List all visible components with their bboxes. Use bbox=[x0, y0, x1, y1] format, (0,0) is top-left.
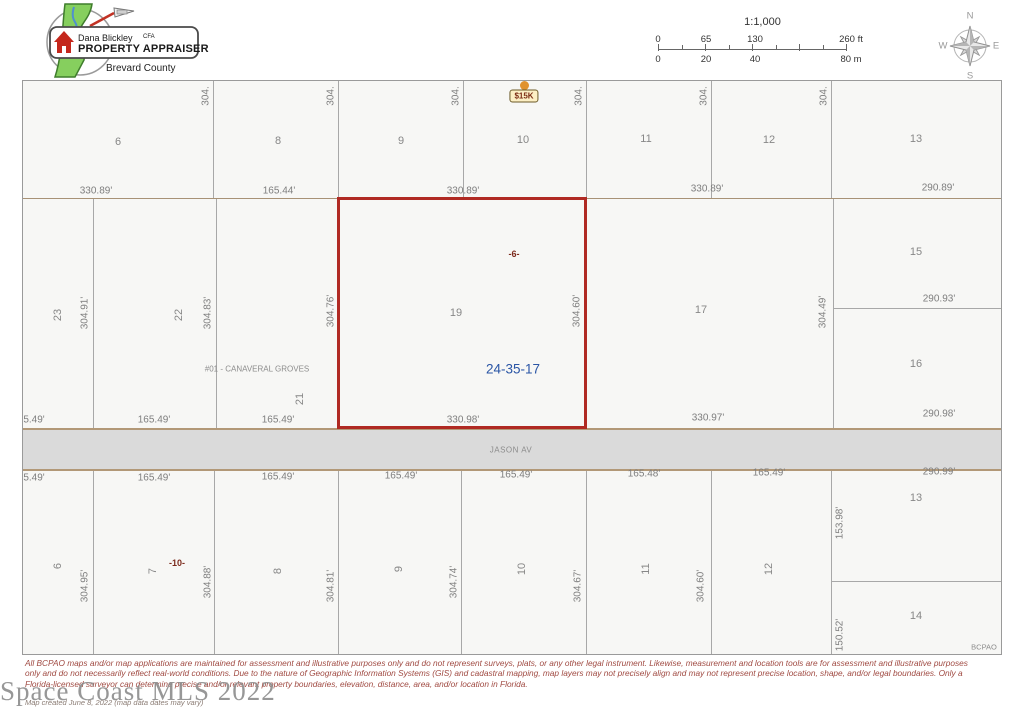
scale-tick bbox=[729, 45, 730, 50]
dimension-label: 165.49' bbox=[262, 415, 295, 426]
subject-section-township-range: 24-35-17 bbox=[486, 362, 540, 377]
map-note-label: #01 - CANAVERAL GROVES bbox=[205, 365, 309, 374]
parcel-boundary-line bbox=[214, 471, 215, 654]
listing-price-badge[interactable]: $15K bbox=[509, 90, 538, 103]
parcel-number-label: 13 bbox=[910, 133, 922, 145]
parcel-boundary-line bbox=[711, 81, 712, 198]
dimension-label: 165.44' bbox=[263, 186, 296, 197]
dimension-label: 330.89' bbox=[691, 184, 724, 195]
scale-tick bbox=[776, 45, 777, 50]
compass-e-label: E bbox=[993, 41, 999, 52]
bcpao-credit: BCPAO bbox=[971, 643, 997, 652]
parcel-boundary-line bbox=[586, 81, 587, 198]
parcel-boundary-line bbox=[833, 308, 1001, 309]
parcel-boundary-line bbox=[93, 471, 94, 654]
dimension-label: 150.52' bbox=[835, 619, 846, 652]
dimension-label: 304.76' bbox=[326, 295, 337, 328]
dimension-label: 5.49' bbox=[23, 415, 44, 426]
dimension-label: 304.95' bbox=[80, 570, 91, 603]
street-name-label: JASON AV bbox=[490, 446, 533, 455]
parcel-number-label: 8 bbox=[272, 568, 284, 574]
dimension-label: 304.88' bbox=[203, 566, 214, 599]
scale-tick bbox=[658, 44, 659, 51]
subject-parcel-number: 19 bbox=[450, 307, 462, 319]
scale-ft-tick: 260 ft bbox=[839, 34, 863, 45]
parcel-boundary-line bbox=[831, 471, 832, 654]
parcel-number-label: 13 bbox=[910, 492, 922, 504]
parcel-number-label: 10 bbox=[516, 563, 528, 575]
compass-rose-icon: N E S W bbox=[938, 10, 1002, 82]
parcel-boundary-line bbox=[463, 81, 464, 198]
dimension-label: 153.98' bbox=[835, 507, 846, 540]
dimension-label: 304. bbox=[201, 86, 212, 105]
dimension-label: 304. bbox=[451, 86, 462, 105]
parcel-map: JASON AV -6- 19 24-35-17 $15K BCPAO 6891… bbox=[22, 80, 1002, 655]
scale-tick bbox=[823, 45, 824, 50]
dimension-label: 330.98' bbox=[447, 415, 480, 426]
parcel-number-label: 12 bbox=[763, 563, 775, 575]
logo-county: Brevard County bbox=[106, 63, 175, 74]
scale-m-tick: 80 m bbox=[840, 54, 861, 65]
logo-cfa-suffix: CFA bbox=[143, 34, 155, 40]
subject-block-label: -6- bbox=[509, 249, 520, 259]
dimension-label: 165.49' bbox=[753, 468, 786, 479]
scale-tick bbox=[752, 44, 753, 51]
scale-m-tick: 20 bbox=[701, 54, 712, 65]
dimension-label: 290.98' bbox=[923, 409, 956, 420]
map-scale-bar: 1:1,000 0 65 130 260 ft 0 20 40 80 m bbox=[650, 12, 875, 68]
parcel-boundary-line bbox=[831, 81, 832, 198]
parcel-boundary-line bbox=[833, 198, 834, 429]
scale-tick bbox=[682, 45, 683, 50]
compass-n-label: N bbox=[967, 11, 974, 22]
dimension-label: 5.49' bbox=[23, 473, 44, 484]
bcpao-map-page: Dana Blickley CFA PROPERTY APPRAISER Bre… bbox=[0, 0, 1024, 725]
scale-tick bbox=[799, 44, 800, 51]
bcpao-logo: Dana Blickley CFA PROPERTY APPRAISER Bre… bbox=[18, 2, 203, 78]
scale-m-tick: 40 bbox=[750, 54, 761, 65]
parcel-number-label: 15 bbox=[910, 246, 922, 258]
parcel-number-label: 11 bbox=[640, 563, 652, 574]
parcel-number-label: 11 bbox=[640, 133, 651, 145]
parcel-boundary-line bbox=[831, 581, 1001, 582]
dimension-label: 304.74' bbox=[449, 566, 460, 599]
shuttle-trail-icon bbox=[90, 13, 114, 26]
dimension-label: 304.91' bbox=[80, 297, 91, 330]
parcel-boundary-line bbox=[586, 471, 587, 654]
scale-tick bbox=[705, 44, 706, 51]
scale-ft-tick: 65 bbox=[701, 34, 712, 45]
block-number-label: -10- bbox=[169, 558, 185, 568]
parcel-number-label: 17 bbox=[695, 304, 707, 316]
parcel-number-label: 16 bbox=[910, 358, 922, 370]
scale-tick bbox=[846, 44, 847, 51]
dimension-label: 304.81' bbox=[326, 570, 337, 603]
parcel-number-label: 14 bbox=[910, 610, 922, 622]
dimension-label: 330.89' bbox=[80, 186, 113, 197]
dimension-label: 165.49' bbox=[138, 473, 171, 484]
dimension-label: 165.49' bbox=[262, 472, 295, 483]
parcel-number-label: 9 bbox=[393, 566, 405, 572]
dimension-label: 304. bbox=[574, 86, 585, 105]
parcel-number-label: 7 bbox=[147, 568, 159, 574]
dimension-label: 304. bbox=[326, 86, 337, 105]
dimension-label: 165.49' bbox=[138, 415, 171, 426]
parcel-number-label: 6 bbox=[115, 136, 121, 148]
parcel-number-label: 6 bbox=[52, 563, 64, 569]
parcel-number-label: 12 bbox=[763, 134, 775, 146]
parcel-boundary-line bbox=[338, 471, 339, 654]
map-created-text: Map created June 8, 2022 (map data dates… bbox=[25, 698, 203, 707]
logo-appraiser-name: Dana Blickley bbox=[78, 33, 133, 43]
scale-ft-tick: 130 bbox=[747, 34, 763, 45]
parcel-boundary-line bbox=[338, 81, 339, 198]
dimension-label: 304.83' bbox=[203, 297, 214, 330]
dimension-label: 330.97' bbox=[692, 413, 725, 424]
parcel-boundary-line bbox=[711, 471, 712, 654]
parcel-number-label: 21 bbox=[294, 393, 306, 405]
parcel-number-label: 23 bbox=[52, 309, 64, 321]
dimension-label: 290.89' bbox=[922, 183, 955, 194]
dimension-label: 304.60' bbox=[696, 570, 707, 603]
dimension-label: 304.60' bbox=[572, 295, 583, 328]
compass-w-label: W bbox=[939, 41, 948, 52]
parcel-number-label: 22 bbox=[173, 309, 185, 321]
parcel-number-label: 10 bbox=[517, 134, 529, 146]
dimension-label: 304. bbox=[819, 86, 830, 105]
dimension-label: 165.49' bbox=[385, 471, 418, 482]
dimension-label: 165.48' bbox=[628, 469, 661, 480]
dimension-label: 330.89' bbox=[447, 186, 480, 197]
dimension-label: 304.67' bbox=[573, 570, 584, 603]
shuttle-icon bbox=[114, 8, 134, 17]
dimension-label: 290.93' bbox=[923, 294, 956, 305]
logo-title: PROPERTY APPRAISER bbox=[78, 43, 209, 55]
parcel-number-label: 8 bbox=[275, 135, 281, 147]
dimension-label: 304.49' bbox=[818, 296, 829, 329]
parcel-boundary-line bbox=[216, 198, 217, 429]
dimension-label: 290.99' bbox=[923, 467, 956, 478]
scale-ratio-label: 1:1,000 bbox=[650, 16, 875, 28]
parcel-number-label: 9 bbox=[398, 135, 404, 147]
scale-m-tick: 0 bbox=[655, 54, 660, 65]
dimension-label: 165.49' bbox=[500, 470, 533, 481]
parcel-boundary-line bbox=[461, 471, 462, 654]
parcel-boundary-line bbox=[213, 81, 214, 198]
dimension-label: 304. bbox=[699, 86, 710, 105]
parcel-boundary-line bbox=[93, 198, 94, 429]
